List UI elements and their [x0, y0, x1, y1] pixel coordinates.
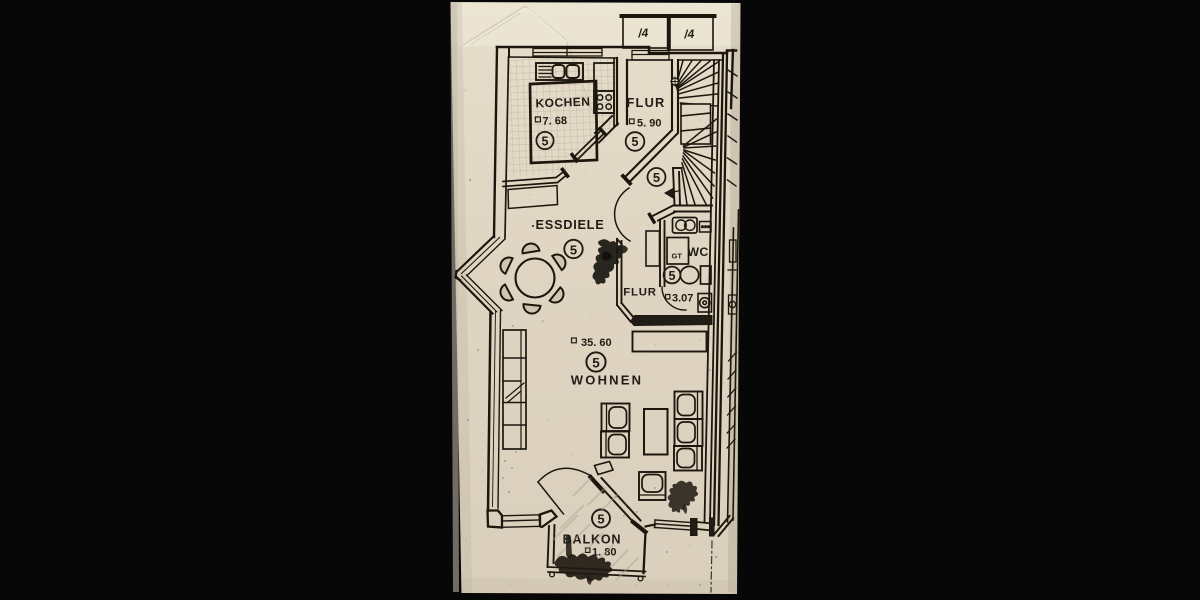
svg-text:GT: GT: [672, 252, 683, 261]
svg-text:KOCHEN: KOCHEN: [535, 95, 590, 111]
svg-text:5: 5: [542, 135, 549, 149]
svg-text:5: 5: [669, 269, 676, 283]
svg-text:FLUR: FLUR: [623, 287, 657, 299]
svg-text:5: 5: [570, 243, 577, 258]
svg-text:5: 5: [653, 170, 660, 185]
svg-text:/4: /4: [683, 27, 695, 42]
svg-text:WC: WC: [687, 245, 708, 259]
svg-text:3.07: 3.07: [672, 293, 693, 305]
svg-text:5: 5: [592, 356, 600, 371]
svg-text:5. 90: 5. 90: [637, 118, 661, 130]
svg-text:5: 5: [597, 512, 604, 527]
svg-text:7. 68: 7. 68: [542, 115, 567, 128]
svg-text:/4: /4: [637, 26, 649, 41]
svg-text:FLUR: FLUR: [627, 95, 666, 110]
svg-text:ESSDIELE: ESSDIELE: [536, 217, 605, 232]
svg-text:WOHNEN: WOHNEN: [571, 373, 643, 388]
svg-text:35. 60: 35. 60: [581, 337, 612, 349]
svg-text:5: 5: [632, 135, 639, 149]
